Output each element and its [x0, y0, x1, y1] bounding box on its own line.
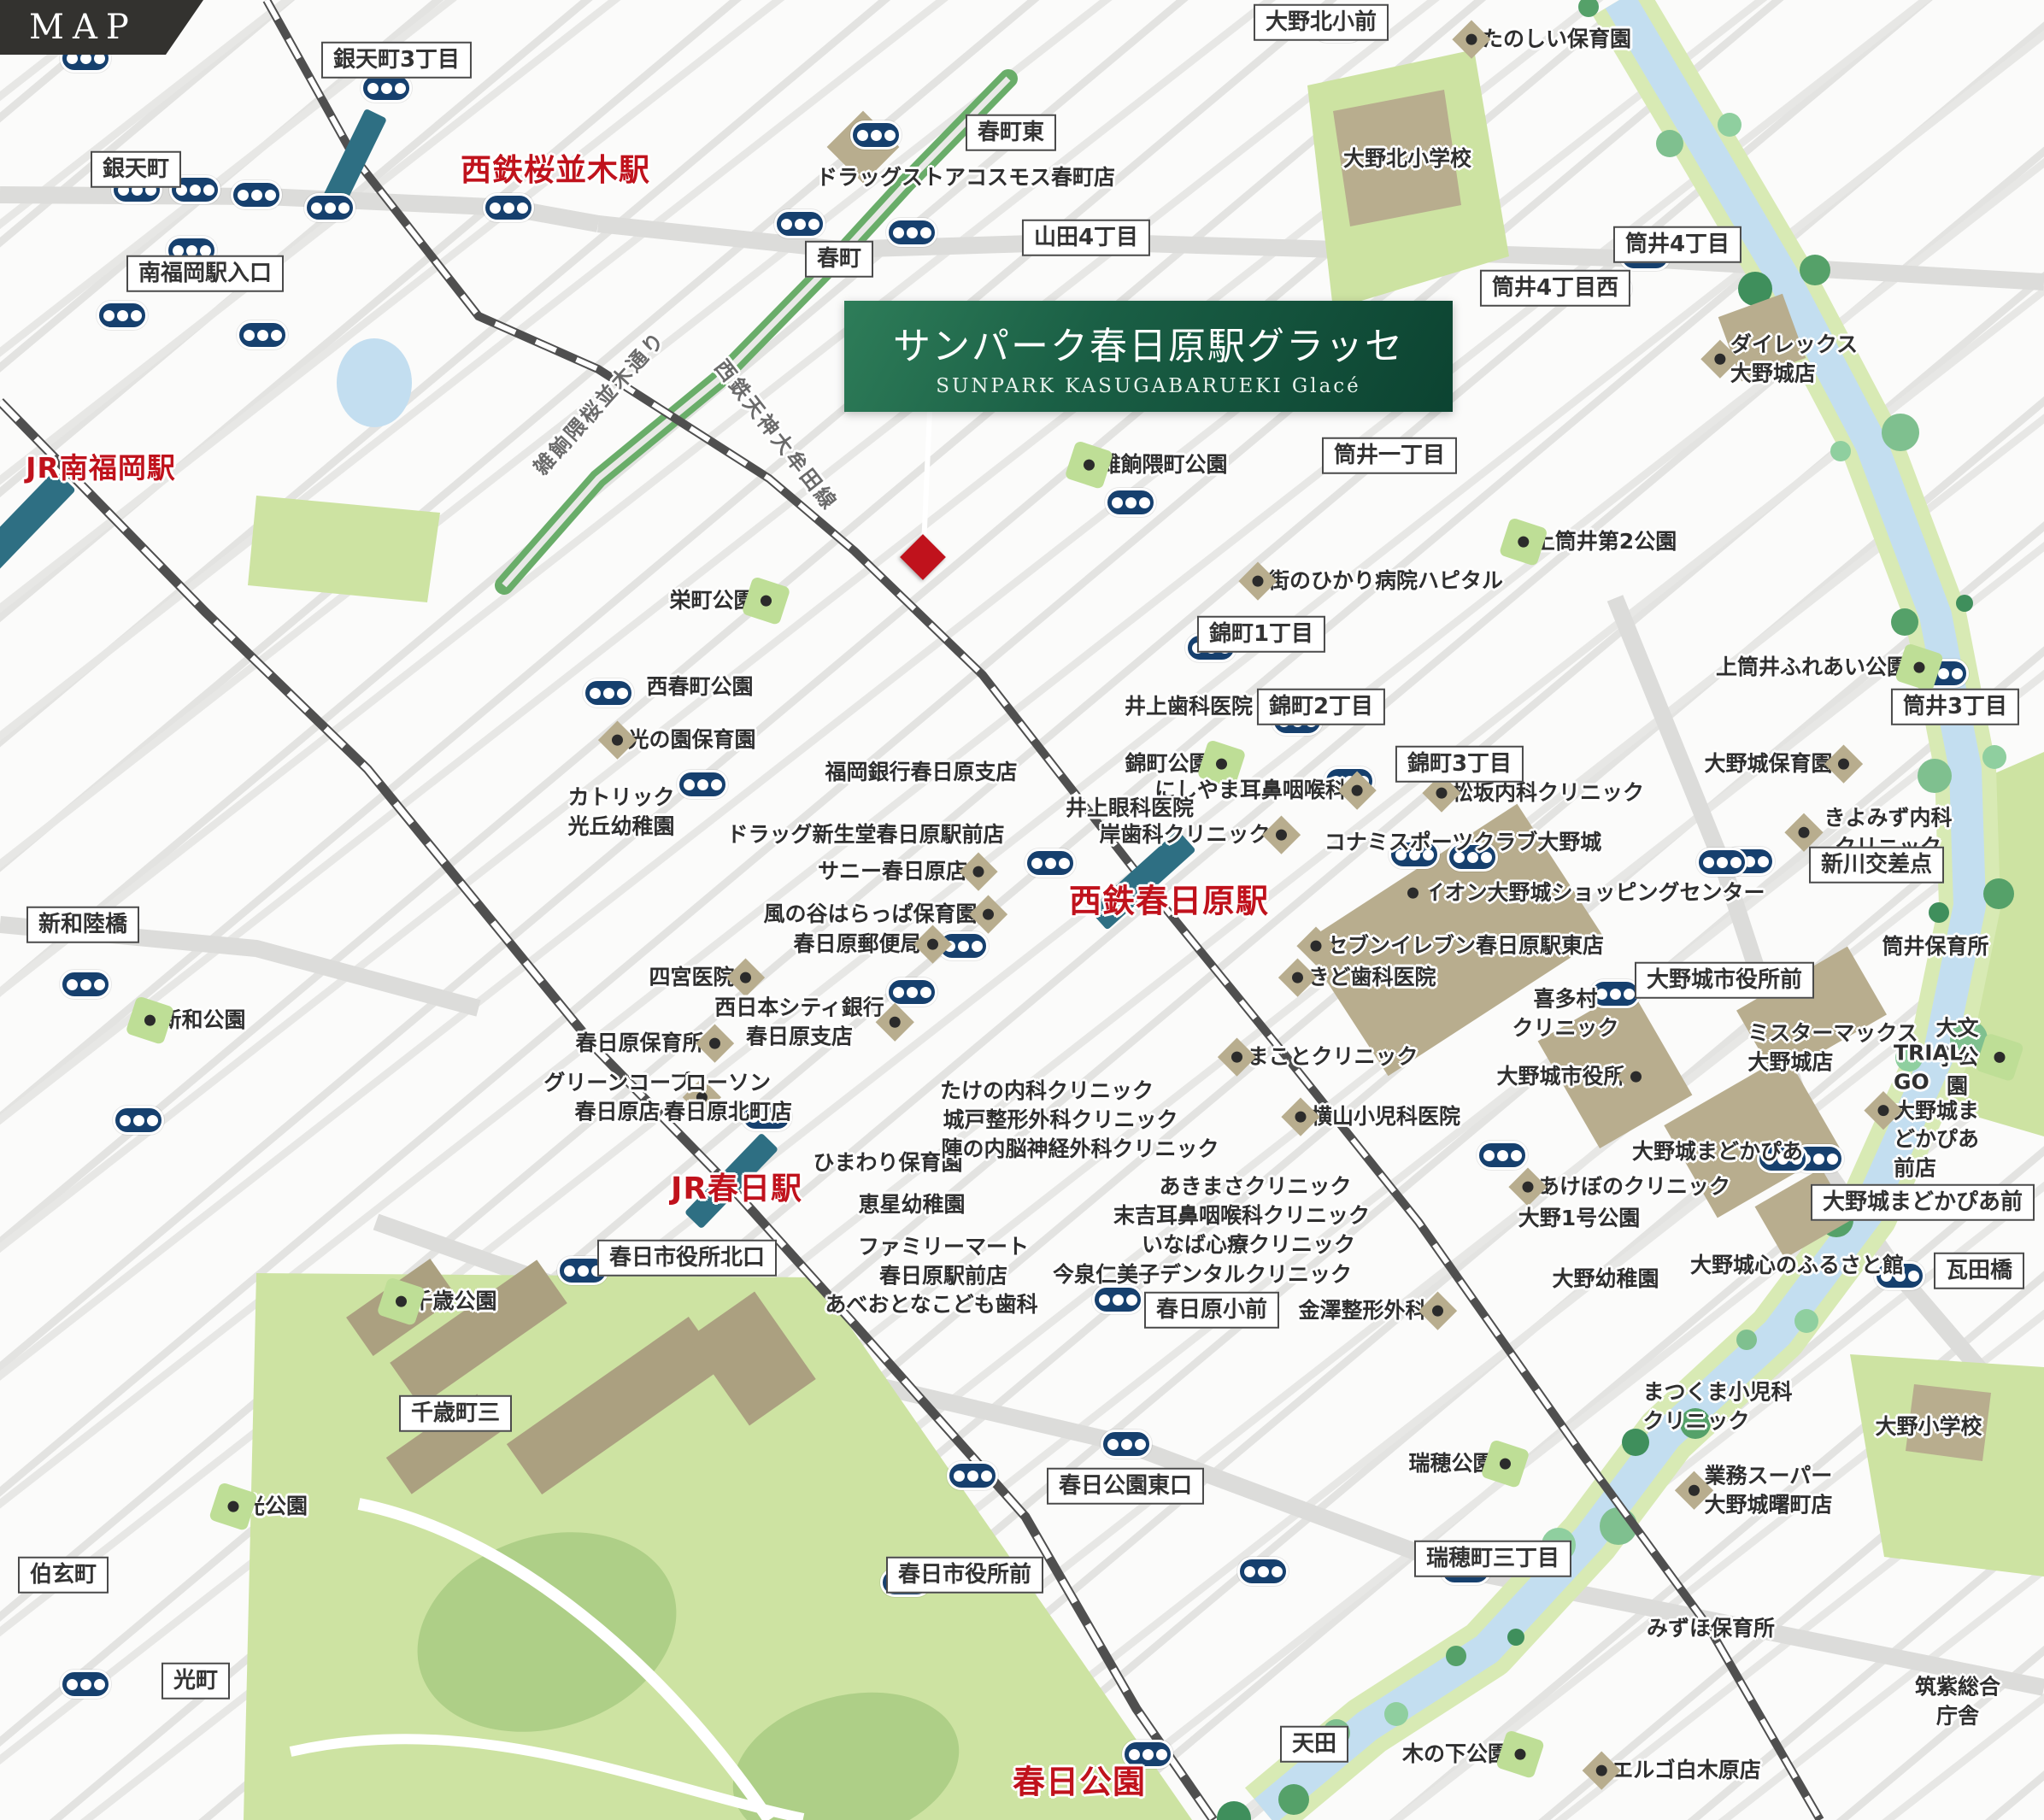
- marker-dot-icon: [1522, 1182, 1533, 1193]
- poi-label: 大野北小学校: [1343, 144, 1471, 173]
- marker-dot-icon: [227, 1501, 238, 1512]
- poi-label: 新和公園: [144, 1006, 245, 1035]
- poi-label: 瑞穂公園: [1408, 1449, 1510, 1478]
- marker-dot-icon: [1877, 1106, 1888, 1117]
- poi-label: あけぼのクリニック: [1522, 1172, 1730, 1201]
- poi-label: カトリック 光丘幼稚園: [567, 783, 674, 841]
- area-label: 光町: [162, 1663, 230, 1700]
- poi-label-text: 上筒井ふれあい公園: [1716, 653, 1908, 682]
- poi-label: 末吉耳鼻咽喉科クリニック: [1113, 1201, 1370, 1230]
- poi-label-text: あけぼのクリニック: [1538, 1172, 1730, 1201]
- crossing-signal-icon: [886, 218, 937, 247]
- poi-label: 街のひかり病院ハピタル: [1252, 567, 1503, 596]
- crossing-signal-icon: [60, 970, 111, 999]
- marker-dot-icon: [740, 972, 751, 983]
- area-label: 瑞穂町三丁目: [1414, 1541, 1571, 1577]
- area-label: 南福岡駅入口: [126, 255, 284, 292]
- poi-label-text: 風の谷はらっぱ保育園: [763, 900, 977, 929]
- station-label: 西鉄春日原駅: [1069, 875, 1269, 922]
- poi-label: 今泉仁美子デンタルクリニック: [1053, 1260, 1352, 1289]
- area-label: 春日公園東口: [1047, 1468, 1204, 1505]
- marker-dot-icon: [1407, 888, 1418, 899]
- poi-label: あきまさクリニック: [1159, 1172, 1351, 1201]
- poi-label: 筑紫総合庁舎: [1915, 1672, 2001, 1730]
- map-canvas: MAP サンパーク春日原駅グラッセ SUNPARK KASUGABARUEKI …: [0, 0, 2044, 1820]
- marker-dot-icon: [761, 596, 772, 607]
- area-label: 新和陸橋: [26, 907, 139, 943]
- marker-dot-icon: [1518, 537, 1529, 548]
- poi-label: 業務スーパー 大野城曙町店: [1688, 1461, 1832, 1519]
- area-label: 筒井一丁目: [1322, 437, 1457, 474]
- poi-label: エルゴ白木原店: [1595, 1756, 1761, 1785]
- poi-label-text: 大野城保育園: [1704, 749, 1832, 778]
- poi-label: 千歳公園: [395, 1287, 496, 1316]
- marker-dot-icon: [1352, 785, 1363, 796]
- marker-dot-icon: [983, 909, 994, 920]
- poi-label: 光公園: [227, 1492, 308, 1521]
- area-label: 大野北小前: [1254, 4, 1389, 41]
- marker-dot-icon: [1595, 1765, 1606, 1776]
- marker-dot-icon: [1291, 972, 1302, 983]
- area-label: 銀天町3丁目: [321, 42, 472, 79]
- poi-label-text: カトリック 光丘幼稚園: [567, 783, 674, 841]
- poi-label: 横山小児科医院: [1295, 1102, 1460, 1131]
- poi-label: ローソン 春日原北町店: [664, 1068, 792, 1126]
- poi-label: 栄町公園: [669, 586, 771, 615]
- station-label: 西鉄桜並木駅: [461, 145, 650, 190]
- property-title: サンパーク春日原駅グラッセ: [893, 315, 1404, 370]
- crossing-signal-icon: [850, 120, 902, 150]
- poi-label-text: 西春町公園: [646, 672, 753, 702]
- crossing-signal-icon: [304, 193, 355, 222]
- poi-label-text: 筒井保育所: [1882, 932, 1988, 961]
- marker-dot-icon: [1688, 1485, 1699, 1496]
- crossing-signal-icon: [237, 320, 288, 349]
- poi-label: いなば心療クリニック: [1142, 1230, 1355, 1259]
- marker-dot-icon: [1436, 788, 1447, 799]
- poi-label-text: 大野城まどかぴあ: [1632, 1137, 1803, 1166]
- area-label: 春日原小前: [1144, 1292, 1279, 1329]
- poi-label-text: 金澤整形外科: [1298, 1296, 1426, 1325]
- poi-label-text: 大野城市役所: [1496, 1062, 1624, 1091]
- poi-label-text: あべおとなこども歯科: [825, 1290, 1037, 1319]
- poi-label: 金澤整形外科: [1298, 1296, 1442, 1325]
- poi-label-text: 西日本シティ銀行 春日原支店: [714, 993, 884, 1051]
- poi-label: たけの内科クリニック: [940, 1077, 1154, 1106]
- marker-dot-icon: [1913, 662, 1924, 673]
- poi-label-text: 恵星幼稚園: [858, 1190, 965, 1219]
- poi-label-text: 街のひかり病院ハピタル: [1268, 567, 1503, 596]
- poi-label: みずほ保育所: [1647, 1614, 1775, 1643]
- poi-label: 春日原保育所: [575, 1029, 720, 1058]
- marker-dot-icon: [1295, 1112, 1306, 1123]
- marker-dot-icon: [1994, 1052, 2005, 1063]
- marker-dot-icon: [611, 735, 622, 746]
- poi-label: 大野城市役所: [1496, 1062, 1641, 1091]
- poi-label: ダイレックス 大野城店: [1714, 330, 1858, 388]
- poi-label-text: ローソン 春日原北町店: [664, 1068, 792, 1126]
- poi-label-text: 雑餉隈町公園: [1099, 450, 1227, 479]
- poi-label: 上筒井ふれあい公園: [1716, 653, 1924, 682]
- area-label: 筒井4丁目: [1613, 226, 1742, 263]
- marker-dot-icon: [1500, 1459, 1511, 1470]
- poi-label-text: 大野小学校: [1875, 1412, 1982, 1441]
- crossing-signal-icon: [583, 678, 634, 707]
- poi-label: まことクリニック: [1231, 1042, 1418, 1071]
- poi-label: TRIAL GO 大野城まどかぴあ前店: [1877, 1039, 1988, 1183]
- poi-label: サニー春日原店: [818, 857, 984, 886]
- station-label: 春日公園: [1013, 1756, 1146, 1803]
- marker-dot-icon: [1083, 460, 1094, 471]
- poi-label-text: 大野北小学校: [1343, 144, 1471, 173]
- marker-dot-icon: [144, 1015, 155, 1026]
- poi-label: 雑餉隈町公園: [1083, 450, 1227, 479]
- poi-label-text: 今泉仁美子デンタルクリニック: [1053, 1260, 1352, 1289]
- marker-dot-icon: [1310, 941, 1321, 952]
- area-label: 大野城市役所前: [1635, 962, 1814, 999]
- area-label: 春町: [805, 241, 873, 278]
- crossing-signal-icon: [1237, 1557, 1289, 1586]
- station-label: JR春日駅: [671, 1164, 802, 1208]
- marker-dot-icon: [1465, 34, 1477, 45]
- area-label: 大野城まどかぴあ前: [1811, 1184, 2035, 1221]
- marker-dot-icon: [1714, 354, 1725, 365]
- poi-label: 西日本シティ銀行 春日原支店: [714, 993, 901, 1051]
- property-title-banner: サンパーク春日原駅グラッセ SUNPARK KASUGABARUEKI Glac…: [844, 301, 1453, 412]
- poi-label: ドラッグストアコスモス春町店: [816, 163, 1115, 192]
- poi-label: ファミリーマート 春日原駅前店: [858, 1232, 1029, 1290]
- poi-label: 西春町公園: [646, 672, 753, 702]
- poi-label: 春日原郵便局: [793, 930, 937, 959]
- area-label: 新川交差点: [1809, 847, 1944, 884]
- poi-label-text: 大野幼稚園: [1552, 1265, 1659, 1294]
- poi-label: 風の谷はらっぱ保育園: [763, 900, 993, 929]
- poi-label: 陣の内脳神経外科クリニック: [941, 1135, 1219, 1164]
- area-label: 伯玄町: [18, 1557, 109, 1594]
- poi-label-text: 松坂内科クリニック: [1452, 778, 1644, 807]
- poi-label-text: まことクリニック: [1247, 1042, 1418, 1071]
- crossing-signal-icon: [231, 180, 282, 209]
- area-label: 筒井4丁目西: [1480, 270, 1630, 307]
- poi-label-text: ドラッグ新生堂春日原駅前店: [726, 820, 1004, 849]
- poi-label-text: 福岡銀行春日原支店: [825, 758, 1017, 787]
- poi-label-text: ファミリーマート 春日原駅前店: [858, 1232, 1029, 1290]
- marker-dot-icon: [1630, 1071, 1642, 1083]
- poi-label-text: あきまさクリニック: [1159, 1172, 1351, 1201]
- poi-label-text: コナミスポーツクラブ大野城: [1324, 828, 1602, 857]
- area-label: 錦町2丁目: [1257, 689, 1385, 725]
- marker-dot-icon: [1252, 576, 1263, 587]
- poi-label: 四宮医院: [649, 963, 750, 992]
- crossing-signal-icon: [60, 1670, 111, 1699]
- poi-label-text: エルゴ白木原店: [1612, 1756, 1761, 1785]
- poi-label: 木の下公園: [1402, 1740, 1525, 1769]
- poi-label: 上筒井第2公園: [1518, 527, 1677, 556]
- poi-label-text: みずほ保育所: [1647, 1614, 1775, 1643]
- poi-label: 松坂内科クリニック: [1436, 778, 1644, 807]
- poi-label-text: 春日原郵便局: [793, 930, 921, 959]
- marker-dot-icon: [395, 1296, 406, 1307]
- poi-label-text: TRIAL GO 大野城まどかぴあ前店: [1894, 1039, 1988, 1183]
- area-label: 千歳町三: [399, 1395, 512, 1432]
- map-tag-label: MAP: [29, 8, 138, 47]
- poi-label: 光の園保育園: [611, 725, 755, 754]
- poi-label-text: 井上眼科医院: [1066, 794, 1194, 823]
- poi-label: 井上歯科医院: [1125, 692, 1253, 721]
- poi-label-text: 岸歯科クリニック: [1099, 820, 1270, 849]
- marker-dot-icon: [709, 1038, 720, 1049]
- crossing-signal-icon: [1105, 488, 1156, 517]
- poi-label-text: いなば心療クリニック: [1142, 1230, 1355, 1259]
- crossing-signal-icon: [1696, 848, 1747, 877]
- property-title-en: SUNPARK KASUGABARUEKI Glacé: [936, 375, 1361, 397]
- poi-label: セブンイレブン春日原駅東店: [1310, 931, 1604, 960]
- crossing-signal-icon: [1025, 848, 1076, 878]
- poi-label: 岸歯科クリニック: [1099, 820, 1286, 849]
- poi-label: 大野1号公園: [1518, 1204, 1640, 1233]
- marker-dot-icon: [1798, 827, 1809, 838]
- crossing-signal-icon: [1092, 1285, 1143, 1314]
- poi-label: あべおとなこども歯科: [825, 1290, 1037, 1319]
- poi-label-text: 業務スーパー 大野城曙町店: [1704, 1461, 1832, 1519]
- poi-label: ドラッグ新生堂春日原駅前店: [726, 820, 1004, 849]
- poi-label-text: たのしい保育園: [1482, 25, 1631, 54]
- poi-label-text: たけの内科クリニック: [940, 1077, 1154, 1106]
- poi-label-text: 喜多村 クリニック: [1512, 984, 1618, 1042]
- poi-label-text: ひまわり保育園: [813, 1148, 962, 1177]
- poi-label-text: 横山小児科医院: [1311, 1102, 1460, 1131]
- poi-label-text: ダイレックス 大野城店: [1730, 330, 1858, 388]
- crossing-signal-icon: [1101, 1430, 1152, 1459]
- poi-label: 錦町公園: [1125, 749, 1226, 778]
- poi-label: 大野幼稚園: [1552, 1265, 1659, 1294]
- area-label: 春町東: [966, 114, 1056, 151]
- poi-label-text: 陣の内脳神経外科クリニック: [941, 1135, 1219, 1164]
- poi-label-text: 木の下公園: [1402, 1740, 1509, 1769]
- area-label: 瓦田橋: [1934, 1253, 2024, 1289]
- poi-label-text: ドラッグストアコスモス春町店: [816, 163, 1115, 192]
- poi-label: 恵星幼稚園: [858, 1190, 965, 1219]
- poi-label: イオン大野城ショッピングセンター: [1407, 878, 1765, 907]
- poi-label: 大野城保育園: [1704, 749, 1848, 778]
- crossing-signal-icon: [677, 770, 728, 799]
- crossing-signal-icon: [947, 1461, 998, 1490]
- marker-dot-icon: [1432, 1306, 1443, 1317]
- poi-label: 筒井保育所: [1882, 932, 1988, 961]
- marker-dot-icon: [1231, 1052, 1242, 1063]
- poi-label-text: 光の園保育園: [627, 725, 755, 754]
- poi-label-text: 大野城心のふるさと館: [1690, 1251, 1904, 1280]
- poi-label: 大野小学校: [1875, 1412, 1982, 1441]
- crossing-signal-icon: [1477, 1141, 1528, 1170]
- marker-dot-icon: [890, 1017, 901, 1028]
- crossing-signal-icon: [774, 209, 825, 238]
- area-label: 天田: [1280, 1726, 1348, 1763]
- marker-dot-icon: [1216, 759, 1227, 770]
- poi-label: 福岡銀行春日原支店: [825, 758, 1017, 787]
- poi-label-text: 四宮医院: [649, 963, 734, 992]
- poi-label: コナミスポーツクラブ大野城: [1324, 828, 1602, 857]
- poi-label-text: まつくま小児科 クリニック: [1642, 1377, 1792, 1435]
- crossing-signal-icon: [113, 1106, 164, 1135]
- map-background: [0, 0, 2044, 1820]
- poi-label-text: 春日原保育所: [575, 1029, 703, 1058]
- poi-label: 城戸整形外科クリニック: [943, 1106, 1178, 1135]
- poi-label: ひまわり保育園: [813, 1148, 962, 1177]
- station-label: JR南福岡駅: [26, 445, 176, 486]
- marker-dot-icon: [1514, 1749, 1525, 1760]
- marker-dot-icon: [1276, 830, 1287, 841]
- poi-label-text: 井上歯科医院: [1125, 692, 1253, 721]
- poi-label-text: 末吉耳鼻咽喉科クリニック: [1113, 1201, 1370, 1230]
- poi-label: きど歯科医院: [1291, 963, 1436, 992]
- area-label: 山田4丁目: [1022, 220, 1150, 256]
- poi-label-text: 筑紫総合庁舎: [1915, 1672, 2001, 1730]
- area-label: 春日市役所前: [886, 1557, 1043, 1594]
- marker-dot-icon: [1838, 759, 1849, 770]
- area-label: 筒井3丁目: [1891, 689, 2019, 725]
- poi-label-text: 城戸整形外科クリニック: [943, 1106, 1178, 1135]
- poi-label: 喜多村 クリニック: [1512, 984, 1618, 1042]
- area-label: 春日市役所北口: [597, 1240, 777, 1277]
- poi-label: まつくま小児科 クリニック: [1642, 1377, 1792, 1435]
- poi-label-text: 上筒井第2公園: [1534, 527, 1677, 556]
- poi-label-text: セブンイレブン春日原駅東店: [1326, 931, 1604, 960]
- crossing-signal-icon: [483, 193, 534, 222]
- marker-dot-icon: [972, 866, 984, 878]
- area-label: 錦町1丁目: [1197, 616, 1325, 653]
- poi-label-text: きど歯科医院: [1307, 963, 1436, 992]
- poi-label: たのしい保育園: [1465, 25, 1631, 54]
- poi-label: 大野城まどかぴあ: [1632, 1137, 1803, 1166]
- poi-label-text: サニー春日原店: [818, 857, 967, 886]
- crossing-signal-icon: [97, 301, 148, 330]
- poi-label: 大野城心のふるさと館: [1690, 1251, 1904, 1280]
- poi-label-text: 大野1号公園: [1518, 1204, 1640, 1233]
- area-label: 錦町3丁目: [1395, 746, 1524, 783]
- poi-label-text: イオン大野城ショッピングセンター: [1423, 878, 1765, 907]
- marker-dot-icon: [927, 939, 938, 950]
- poi-label: 井上眼科医院: [1066, 794, 1194, 823]
- area-label: 銀天町: [91, 151, 181, 188]
